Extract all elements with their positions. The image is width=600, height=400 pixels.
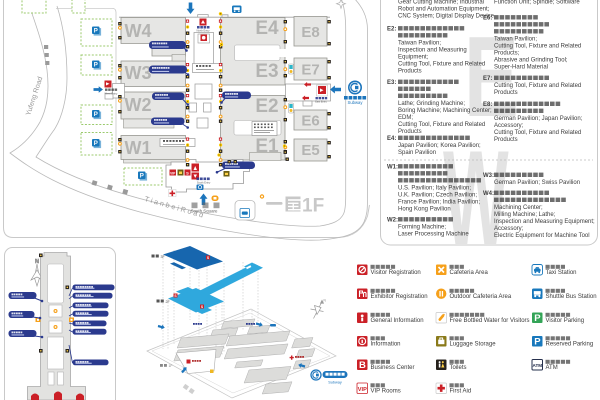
svg-text:3F: 3F [161, 255, 166, 259]
svg-text:P: P [94, 61, 98, 68]
svg-text:Cutting Tool, Fixture and Rela: Cutting Tool, Fixture and Related [494, 83, 581, 89]
svg-text:Products: Products [494, 137, 518, 143]
svg-text:Inspection and Measuring Equip: Inspection and Measuring Equipment; [494, 219, 595, 225]
svg-text:Information: Information [371, 342, 401, 348]
svg-text:B: B [359, 360, 366, 371]
svg-text:E6: E6 [301, 113, 319, 130]
svg-text:Spain Pavilion: Spain Pavilion [398, 150, 436, 156]
svg-text:P: P [534, 313, 541, 324]
svg-text:Toilets: Toilets [450, 365, 467, 371]
svg-text:West Entry: West Entry [105, 92, 118, 96]
svg-text:U.S. Pavilion; Italy Pavilion;: U.S. Pavilion; Italy Pavilion; [398, 186, 471, 192]
svg-text:W3: W3 [125, 63, 152, 83]
svg-text:E5: E5 [301, 142, 319, 159]
svg-text:Super-Hard Material: Super-Hard Material [494, 65, 548, 71]
svg-text:Cutting Tool, Fixture and Rela: Cutting Tool, Fixture and Related [494, 44, 581, 50]
svg-text:Business Center: Business Center [371, 365, 415, 371]
svg-text:Products: Products [494, 90, 518, 96]
svg-text:VIP: VIP [170, 171, 176, 175]
svg-text:Visitor Parking: Visitor Parking [546, 318, 585, 324]
svg-text:First Aid: First Aid [450, 389, 472, 395]
svg-text:E2: E2 [255, 96, 278, 117]
svg-text:P: P [140, 172, 144, 179]
svg-text:CNC System; Digital Display De: CNC System; Digital Display Device [398, 14, 495, 20]
svg-text:Equipment;: Equipment; [398, 55, 429, 61]
svg-text:Electric Equipment for Machine: Electric Equipment for Machine Tool [494, 233, 590, 239]
svg-text:Subway: Subway [328, 381, 342, 385]
svg-text:Inspection and Measuring: Inspection and Measuring [398, 48, 467, 54]
svg-text:E3: E3 [255, 61, 278, 82]
svg-text:Taiwan Pavilion;: Taiwan Pavilion; [398, 41, 441, 47]
svg-text:1F: 1F [302, 196, 324, 217]
svg-text:Abrasive and Grinding Tool;: Abrasive and Grinding Tool; [494, 58, 568, 64]
svg-text:E8: E8 [301, 24, 319, 41]
svg-text:W2:: W2: [387, 218, 398, 224]
svg-text:W4: W4 [125, 21, 152, 41]
svg-text:ATM: ATM [532, 363, 542, 368]
svg-text:W3:: W3: [483, 173, 494, 179]
svg-text:South Square: South Square [191, 209, 218, 214]
svg-text:Visitor Registration: Visitor Registration [371, 270, 421, 276]
svg-text:E2:: E2: [387, 27, 396, 33]
svg-text:E4:: E4: [387, 136, 396, 142]
svg-text:Forming Machine;: Forming Machine; [398, 225, 446, 231]
svg-text:Accessory;: Accessory; [494, 226, 524, 232]
svg-text:U.K. Pavilion; Czech Pavilion;: U.K. Pavilion; Czech Pavilion; [398, 193, 477, 199]
svg-text:E7:: E7: [483, 76, 492, 82]
svg-text:W2: W2 [125, 95, 152, 115]
svg-text:France Pavilion; India Pavilio: France Pavilion; India Pavilion; [398, 200, 480, 206]
svg-text:Laser Processing Machine: Laser Processing Machine [398, 232, 469, 238]
svg-text:German Pavilion; Swiss Pavilio: German Pavilion; Swiss Pavilion [494, 180, 580, 186]
svg-text:W1: W1 [125, 138, 152, 158]
svg-text:P: P [94, 111, 98, 118]
svg-text:E3:: E3: [387, 80, 396, 86]
svg-text:Japan Pavilion; Korea Pavilion: Japan Pavilion; Korea Pavilion; [398, 143, 481, 149]
svg-text:E7: E7 [301, 62, 319, 79]
svg-text:South Entry: South Entry [197, 180, 211, 184]
svg-text:ATM: ATM [546, 365, 558, 371]
svg-text:Gear Cutting Machine; Industri: Gear Cutting Machine; Industrial [398, 0, 484, 6]
svg-text:Machining Center;: Machining Center; [494, 205, 543, 211]
svg-text:EDM;: EDM; [398, 115, 413, 121]
svg-text:Exhibitor Registration: Exhibitor Registration [371, 294, 428, 300]
svg-text:Lathe; Grinding Machine;: Lathe; Grinding Machine; [398, 101, 465, 107]
svg-text:German Pavilion; Japan Pavilio: German Pavilion; Japan Pavilion; [494, 116, 583, 122]
svg-text:E8:: E8: [483, 102, 492, 108]
svg-text:W4:: W4: [483, 191, 494, 197]
svg-text:P: P [94, 140, 98, 147]
svg-text:Hong Kong Pavilion: Hong Kong Pavilion [398, 207, 451, 213]
svg-text:VIP: VIP [358, 387, 367, 393]
svg-text:1F: 1F [169, 364, 173, 368]
svg-text:Products: Products [398, 69, 422, 75]
svg-text:Robot and Automation Equipment: Robot and Automation Equipment; [398, 7, 490, 13]
svg-text:P: P [94, 27, 98, 34]
svg-text:Subway: Subway [348, 100, 364, 105]
svg-text:W1:: W1: [387, 165, 398, 171]
svg-text:Milling Machine; Lathe;: Milling Machine; Lathe; [494, 212, 556, 218]
svg-text:E4: E4 [255, 18, 279, 39]
svg-text:Products;: Products; [494, 51, 520, 57]
svg-text:Boring Machine; Machining Cent: Boring Machine; Machining Center; [398, 108, 492, 114]
svg-text:North Entry: North Entry [196, 29, 210, 33]
svg-text:Outdoor Cafeteria Area: Outdoor Cafeteria Area [450, 294, 512, 300]
svg-text:East Entry: East Entry [315, 100, 327, 103]
svg-text:Reserved Parking: Reserved Parking [546, 342, 594, 348]
svg-text:Function Unit; Spindle; Softwa: Function Unit; Spindle; Software [494, 0, 580, 6]
svg-text:E6:: E6: [483, 16, 492, 22]
svg-text:Cutting Tool, Fixture and Rela: Cutting Tool, Fixture and Related [494, 130, 581, 136]
svg-text:Taiwan Pavilion;: Taiwan Pavilion; [494, 37, 537, 43]
svg-text:Shuttle Bus Station: Shuttle Bus Station [546, 294, 597, 300]
svg-text:Accessory;: Accessory; [494, 123, 524, 129]
svg-text:General Information: General Information [371, 318, 424, 324]
svg-text:Cutting Tool, Fixture and Rela: Cutting Tool, Fixture and Related [398, 62, 485, 68]
svg-text:Products: Products [398, 129, 422, 135]
svg-text:2F: 2F [166, 300, 171, 304]
svg-text:Cutting Tool, Fixture and Rela: Cutting Tool, Fixture and Related [398, 122, 485, 128]
svg-text:Taxi Station: Taxi Station [546, 270, 577, 276]
svg-text:P: P [534, 337, 541, 348]
svg-text:N: N [324, 299, 327, 303]
svg-text:VIP Rooms: VIP Rooms [371, 389, 401, 395]
svg-text:Free Bottled Water for Visitor: Free Bottled Water for Visitors [450, 318, 530, 324]
svg-text:S: S [186, 171, 189, 176]
svg-text:Luggage Storage: Luggage Storage [450, 342, 497, 348]
svg-text:Cafeteria Area: Cafeteria Area [450, 270, 489, 276]
